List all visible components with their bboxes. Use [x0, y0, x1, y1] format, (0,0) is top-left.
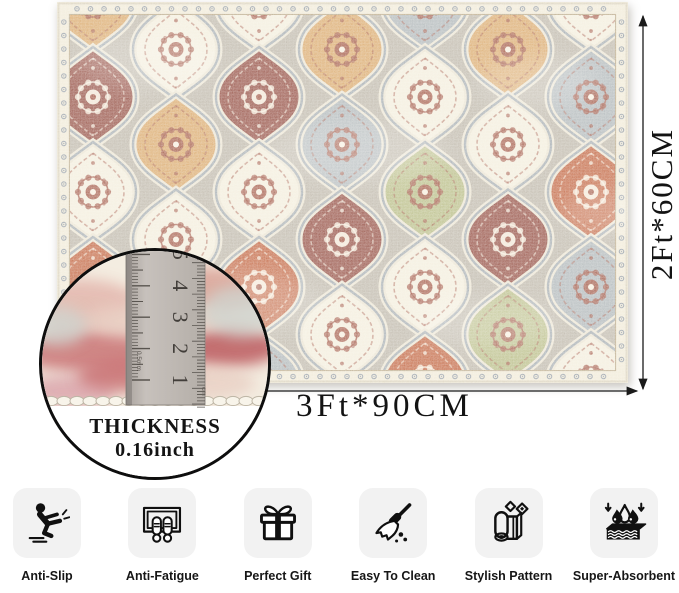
- feature-anti-slip: Anti-Slip: [4, 488, 90, 583]
- svg-text:2: 2: [168, 343, 193, 354]
- svg-text:5: 5: [168, 251, 193, 260]
- feature-label: Easy To Clean: [351, 569, 436, 583]
- feature-label: Perfect Gift: [244, 569, 311, 583]
- svg-text:3: 3: [168, 312, 193, 323]
- thickness-title: THICKNESS: [42, 414, 268, 439]
- easy-to-clean-icon: [370, 500, 416, 546]
- svg-text:cm: cm: [200, 387, 207, 396]
- thickness-inset-circle: 123450.5mmcm THICKNESS 0.16inch: [39, 248, 271, 480]
- stylish-pattern-icon: [486, 500, 532, 546]
- width-dimension-label: 3Ft*90CM: [296, 388, 473, 425]
- feature-stylish-pattern: Stylish Pattern: [466, 488, 552, 583]
- svg-text:4: 4: [168, 280, 193, 291]
- feature-easy-to-clean: Easy To Clean: [350, 488, 436, 583]
- svg-text:1: 1: [168, 375, 193, 386]
- anti-slip-icon: [24, 500, 70, 546]
- feature-row: Anti-Slip Anti-Fatigue: [0, 488, 679, 583]
- easy-to-clean-tile: [359, 488, 427, 558]
- anti-fatigue-tile: [128, 488, 196, 558]
- feature-label: Super-Absorbent: [573, 569, 675, 583]
- feature-anti-fatigue: Anti-Fatigue: [119, 488, 205, 583]
- super-absorbent-tile: [590, 488, 658, 558]
- feature-label: Anti-Fatigue: [126, 569, 199, 583]
- stylish-pattern-tile: [475, 488, 543, 558]
- product-image: 3Ft*90CM 2Ft*60CM 123450.5mmcm THICKNESS…: [0, 0, 679, 593]
- feature-label: Anti-Slip: [21, 569, 72, 583]
- feature-perfect-gift: Perfect Gift: [235, 488, 321, 583]
- feature-super-absorbent: Super-Absorbent: [581, 488, 667, 583]
- height-dimension-label: 2Ft*60CM: [644, 82, 679, 326]
- anti-fatigue-icon: [139, 500, 185, 546]
- feature-label: Stylish Pattern: [465, 569, 553, 583]
- anti-slip-tile: [13, 488, 81, 558]
- super-absorbent-icon: [601, 500, 647, 546]
- perfect-gift-icon: [255, 500, 301, 546]
- perfect-gift-tile: [244, 488, 312, 558]
- svg-text:0.5mm: 0.5mm: [135, 351, 142, 371]
- thickness-value: 0.16inch: [42, 439, 268, 462]
